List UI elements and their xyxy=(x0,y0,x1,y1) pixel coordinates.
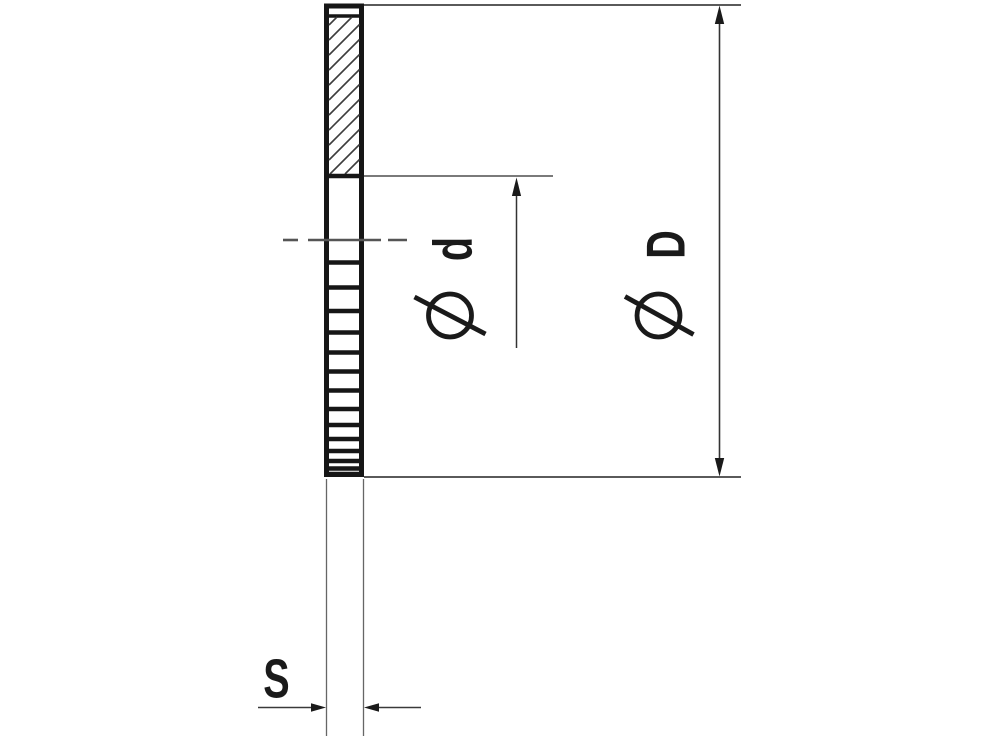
arrowhead-down-icon xyxy=(715,458,724,477)
section-hatching xyxy=(329,17,360,174)
diameter-symbol-icon xyxy=(415,294,486,337)
hatch-line xyxy=(345,160,360,175)
hatch-line xyxy=(329,130,360,161)
outer-diameter-label: D xyxy=(636,230,697,259)
inner-diameter-label: d xyxy=(423,237,484,261)
dim-thickness: S xyxy=(258,479,421,736)
hatch-line xyxy=(329,17,337,25)
hatch-line xyxy=(329,115,360,146)
hatch-line xyxy=(329,25,360,56)
arrowhead-left-icon xyxy=(364,703,379,712)
hatch-line xyxy=(330,145,360,175)
serration-lines xyxy=(328,263,361,475)
hatch-line xyxy=(329,85,360,116)
dim-inner-diameter: d xyxy=(364,176,553,348)
dim-outer-diameter: D xyxy=(364,5,741,477)
hatch-line xyxy=(329,55,360,86)
diameter-symbol-icon xyxy=(625,294,694,337)
technical-drawing-canvas: d D S xyxy=(0,0,1000,736)
arrowhead-up-icon xyxy=(715,6,724,25)
hatch-line xyxy=(329,70,360,101)
arrowhead-up-icon xyxy=(512,178,521,197)
hatch-line xyxy=(329,100,360,131)
hatch-line xyxy=(329,40,360,71)
thickness-label: S xyxy=(263,649,289,710)
arrowhead-right-icon xyxy=(311,703,326,712)
